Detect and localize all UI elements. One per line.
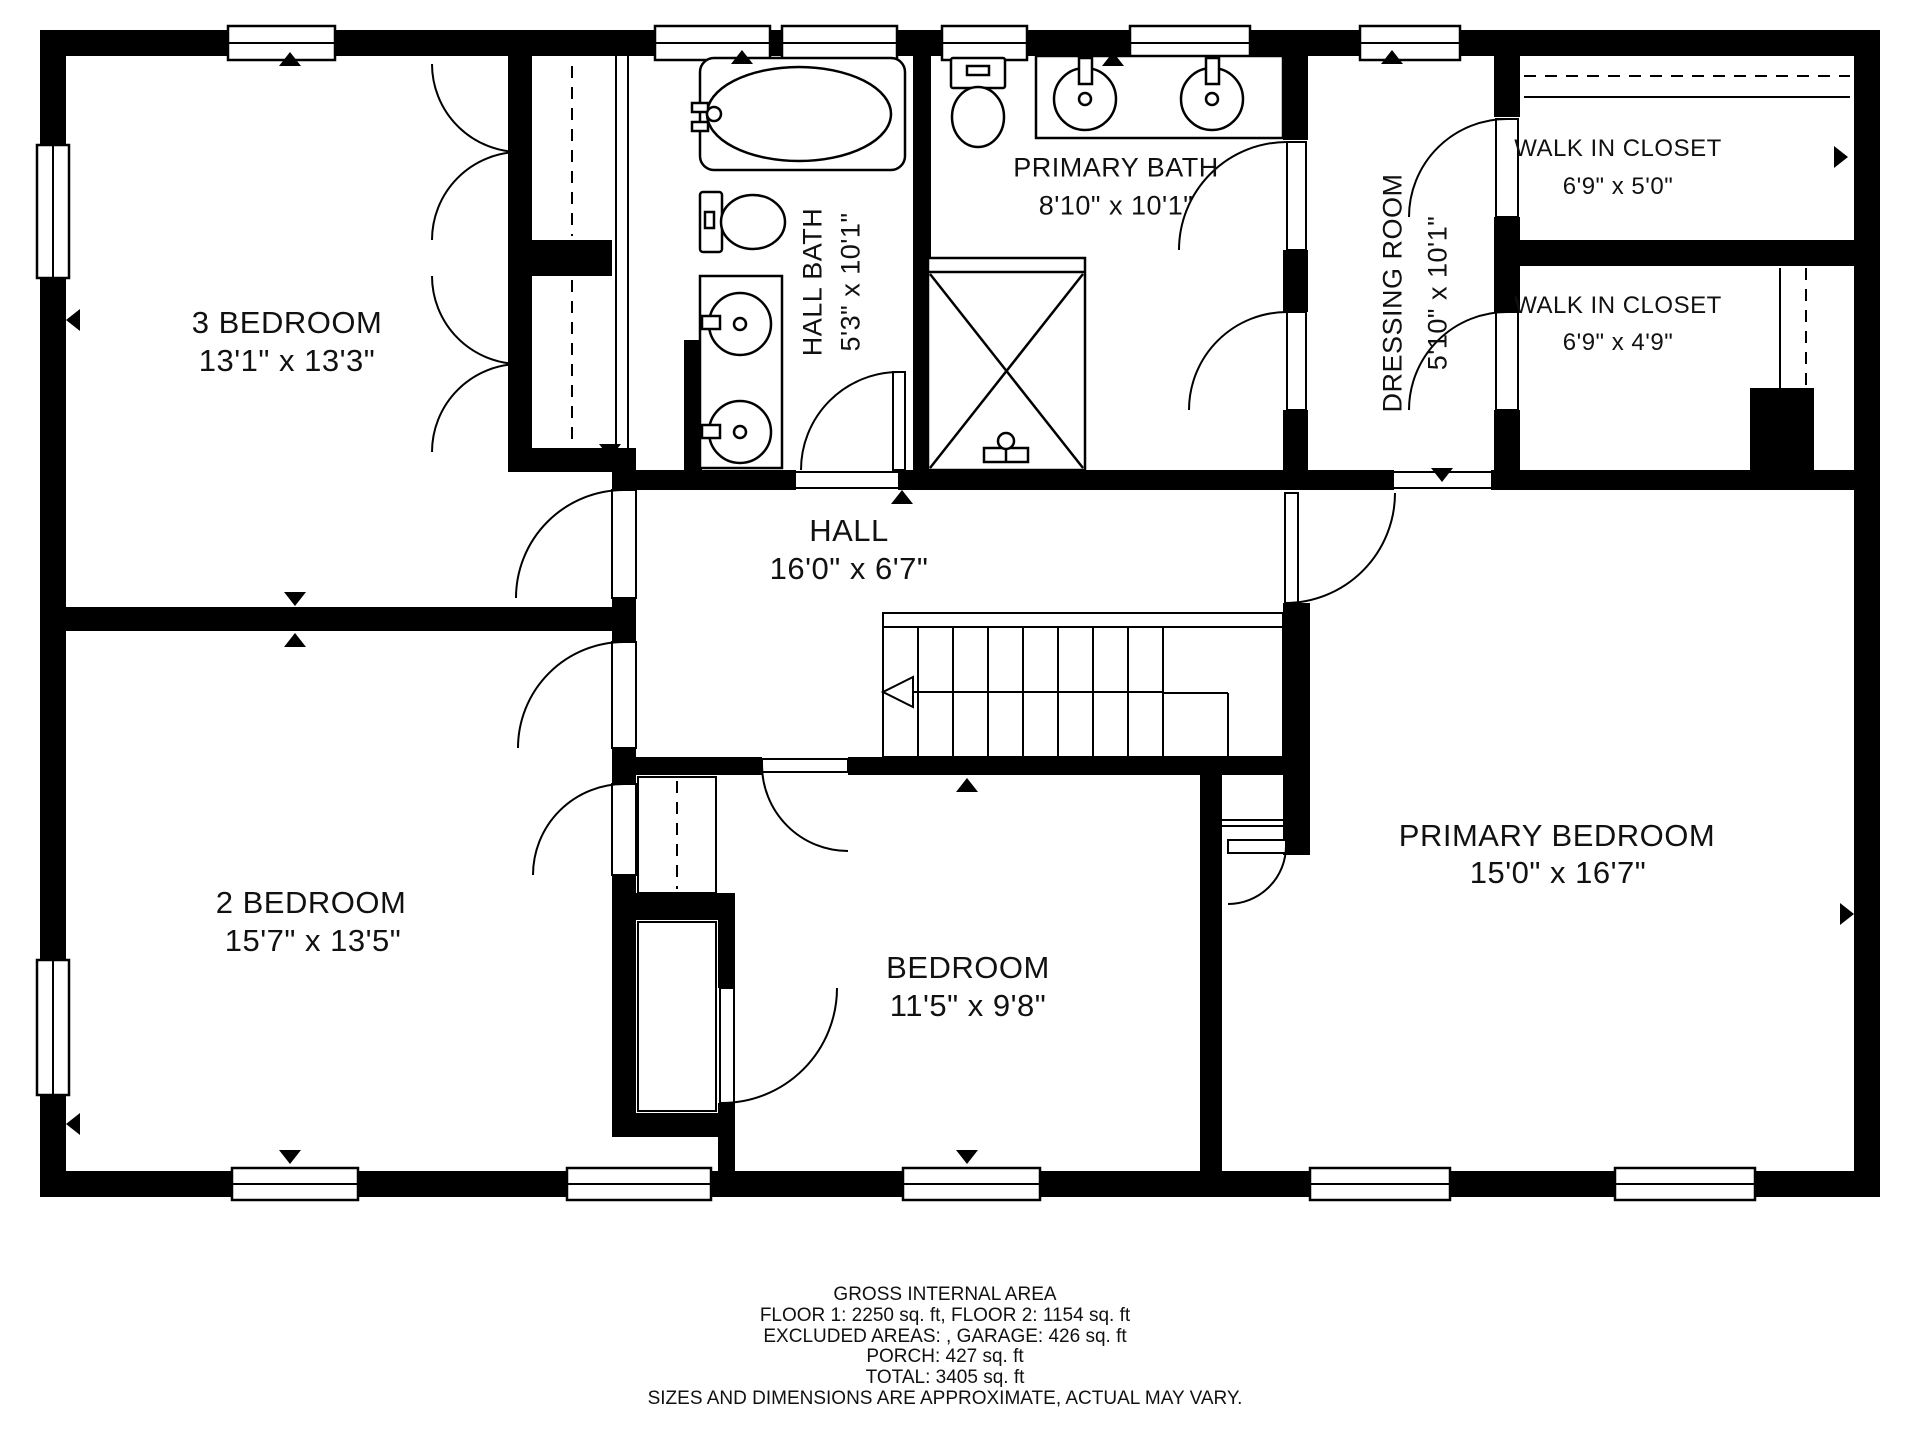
area-summary-total: TOTAL: 3405 sq. ft (648, 1368, 1243, 1389)
area-summary: GROSS INTERNAL AREA FLOOR 1: 2250 sq. ft… (648, 1285, 1243, 1410)
room-label-2-bedroom: 2 BEDROOM (216, 885, 407, 921)
area-summary-title: GROSS INTERNAL AREA (648, 1285, 1243, 1306)
room-label-hall-bath: HALL BATH (798, 208, 829, 357)
room-label-primary-bedroom: PRIMARY BEDROOM (1399, 818, 1715, 854)
double-vanity-icon (1036, 56, 1283, 138)
area-summary-excluded: EXCLUDED AREAS: , GARAGE: 426 sq. ft (648, 1327, 1243, 1348)
room-label-walk-in-closet-2: WALK IN CLOSET (1514, 292, 1721, 320)
area-summary-disclaimer: SIZES AND DIMENSIONS ARE APPROXIMATE, AC… (648, 1389, 1243, 1410)
room-label-walk-in-closet-1: WALK IN CLOSET (1514, 135, 1721, 163)
floor-plan-page: 3 BEDROOM 13'1" x 13'3" 2 BEDROOM 15'7" … (0, 0, 1920, 1440)
room-label-3-bedroom: 3 BEDROOM (192, 305, 383, 341)
room-dims-bedroom: 11'5" x 9'8" (890, 988, 1046, 1024)
shower-icon (928, 258, 1085, 470)
room-label-dressing-room: DRESSING ROOM (1378, 173, 1409, 412)
room-dims-walk-in-closet-1: 6'9" x 5'0" (1563, 173, 1673, 201)
room-dims-2-bedroom: 15'7" x 13'5" (225, 923, 402, 959)
sink-icon (700, 276, 782, 468)
stair-direction-arrow (883, 677, 913, 707)
area-summary-porch: PORCH: 427 sq. ft (648, 1347, 1243, 1368)
area-summary-floors: FLOOR 1: 2250 sq. ft, FLOOR 2: 1154 sq. … (648, 1306, 1243, 1327)
room-dims-walk-in-closet-2: 6'9" x 4'9" (1563, 329, 1673, 357)
room-label-hall: HALL (809, 513, 889, 549)
toilet-icon (700, 192, 785, 252)
toilet-icon (951, 58, 1005, 147)
room-dims-hall: 16'0" x 6'7" (770, 551, 929, 587)
bathtub-icon (692, 58, 905, 170)
room-dims-primary-bath: 8'10" x 10'1" (1039, 191, 1194, 222)
stairs-icon (883, 613, 1283, 757)
room-label-primary-bath: PRIMARY BATH (1013, 153, 1219, 184)
room-dims-primary-bedroom: 15'0" x 16'7" (1470, 855, 1647, 891)
room-dims-dressing-room: 5'10" x 10'1" (1423, 216, 1454, 371)
floor-plan-drawing (0, 0, 1920, 1440)
room-dims-3-bedroom: 13'1" x 13'3" (199, 343, 376, 379)
door-swing-icon (432, 64, 1507, 1103)
room-label-bedroom: BEDROOM (886, 950, 1050, 986)
floor-plan: 3 BEDROOM 13'1" x 13'3" 2 BEDROOM 15'7" … (0, 0, 1920, 1440)
room-dims-hall-bath: 5'3" x 10'1" (836, 212, 867, 351)
